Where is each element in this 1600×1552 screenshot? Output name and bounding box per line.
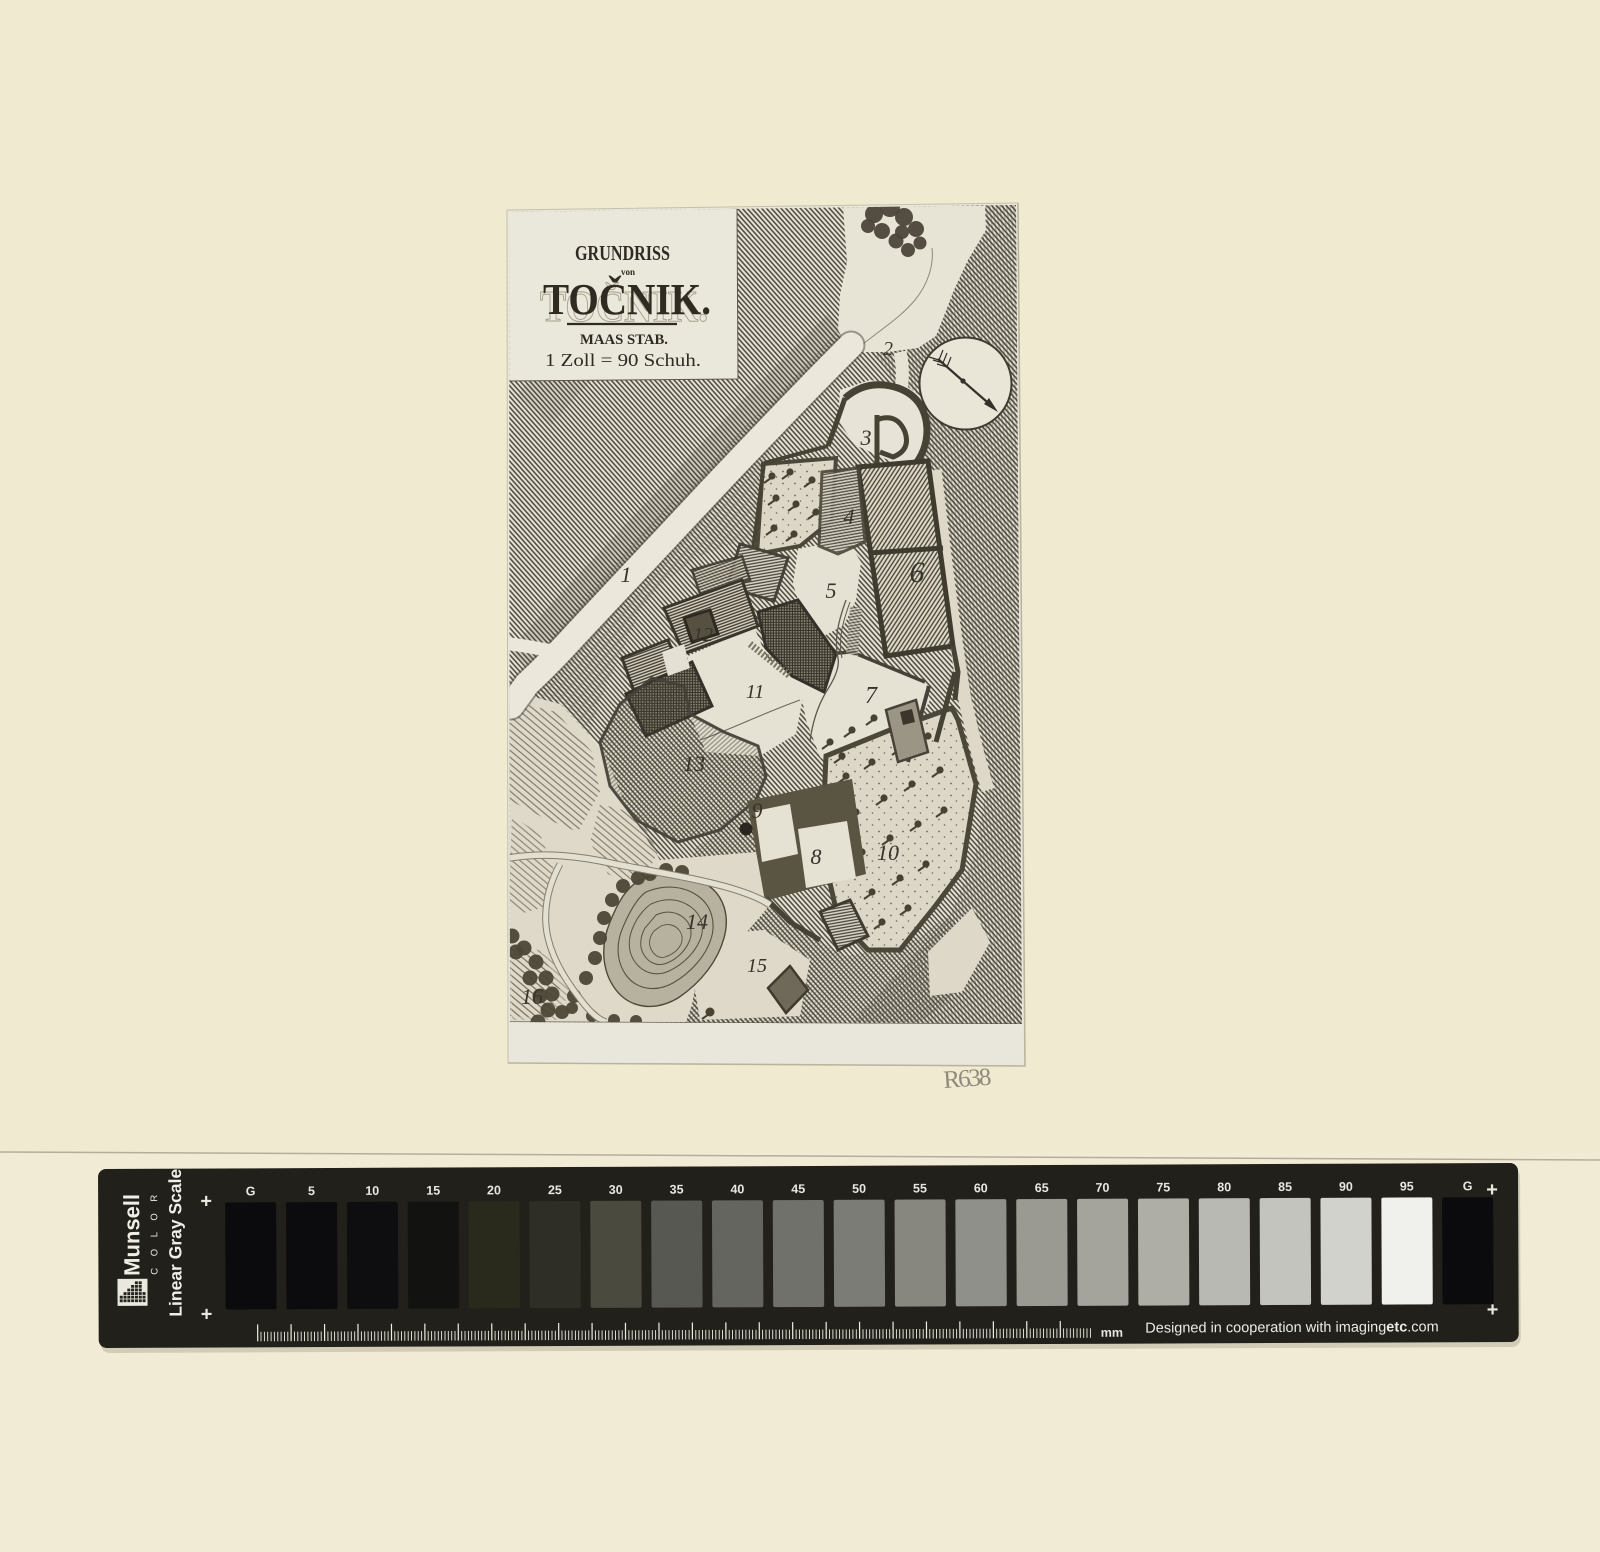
svg-text:40: 40	[730, 1182, 744, 1196]
svg-text:5: 5	[308, 1184, 315, 1198]
svg-text:4: 4	[844, 504, 855, 529]
svg-text:65: 65	[1035, 1181, 1049, 1195]
svg-text:8: 8	[811, 844, 822, 869]
svg-text:15: 15	[747, 955, 767, 977]
svg-text:25: 25	[548, 1183, 562, 1197]
svg-text:55: 55	[913, 1181, 927, 1195]
svg-text:75: 75	[1156, 1180, 1170, 1194]
svg-text:11: 11	[746, 681, 765, 703]
svg-text:30: 30	[609, 1183, 623, 1197]
svg-text:Munsell: Munsell	[119, 1194, 144, 1276]
svg-text:60: 60	[974, 1181, 988, 1195]
svg-text:14: 14	[686, 909, 708, 934]
svg-text:7: 7	[865, 683, 878, 709]
svg-text:Linear Gray Scale: Linear Gray Scale	[165, 1169, 186, 1317]
svg-text:G: G	[1463, 1179, 1473, 1193]
svg-text:Designed in cooperation with i: Designed in cooperation with imagingetc.…	[1145, 1319, 1438, 1336]
svg-text:5: 5	[826, 578, 837, 603]
svg-text:1: 1	[621, 562, 632, 587]
svg-text:10: 10	[365, 1184, 379, 1198]
svg-text:C O L O R: C O L O R	[149, 1190, 160, 1275]
svg-text:2: 2	[883, 338, 893, 360]
svg-text:16: 16	[521, 984, 543, 1009]
svg-text:9: 9	[752, 798, 763, 823]
svg-text:1 Zoll = 90 Schuh.: 1 Zoll = 90 Schuh.	[545, 350, 701, 370]
svg-text:15: 15	[426, 1184, 440, 1198]
svg-text:mm: mm	[1101, 1326, 1123, 1340]
svg-text:13: 13	[683, 751, 705, 776]
svg-text:35: 35	[670, 1183, 684, 1197]
svg-text:TOČNIK.: TOČNIK.	[543, 275, 711, 324]
svg-text:G: G	[246, 1184, 256, 1198]
svg-text:MAAS STAB.: MAAS STAB.	[580, 332, 668, 348]
svg-text:85: 85	[1278, 1180, 1292, 1194]
svg-text:R638: R638	[943, 1064, 993, 1094]
svg-text:+: +	[201, 1304, 213, 1326]
svg-text:3: 3	[860, 425, 872, 450]
svg-text:20: 20	[487, 1183, 501, 1197]
svg-text:95: 95	[1400, 1179, 1414, 1193]
svg-text:GRUNDRISS: GRUNDRISS	[575, 241, 670, 265]
svg-text:90: 90	[1339, 1180, 1353, 1194]
svg-text:+: +	[200, 1191, 212, 1213]
svg-text:50: 50	[852, 1182, 866, 1196]
svg-text:6: 6	[910, 556, 925, 589]
svg-text:10: 10	[877, 840, 899, 865]
svg-text:12: 12	[693, 624, 713, 646]
svg-text:70: 70	[1096, 1181, 1110, 1195]
svg-text:80: 80	[1217, 1180, 1231, 1194]
svg-text:45: 45	[791, 1182, 805, 1196]
